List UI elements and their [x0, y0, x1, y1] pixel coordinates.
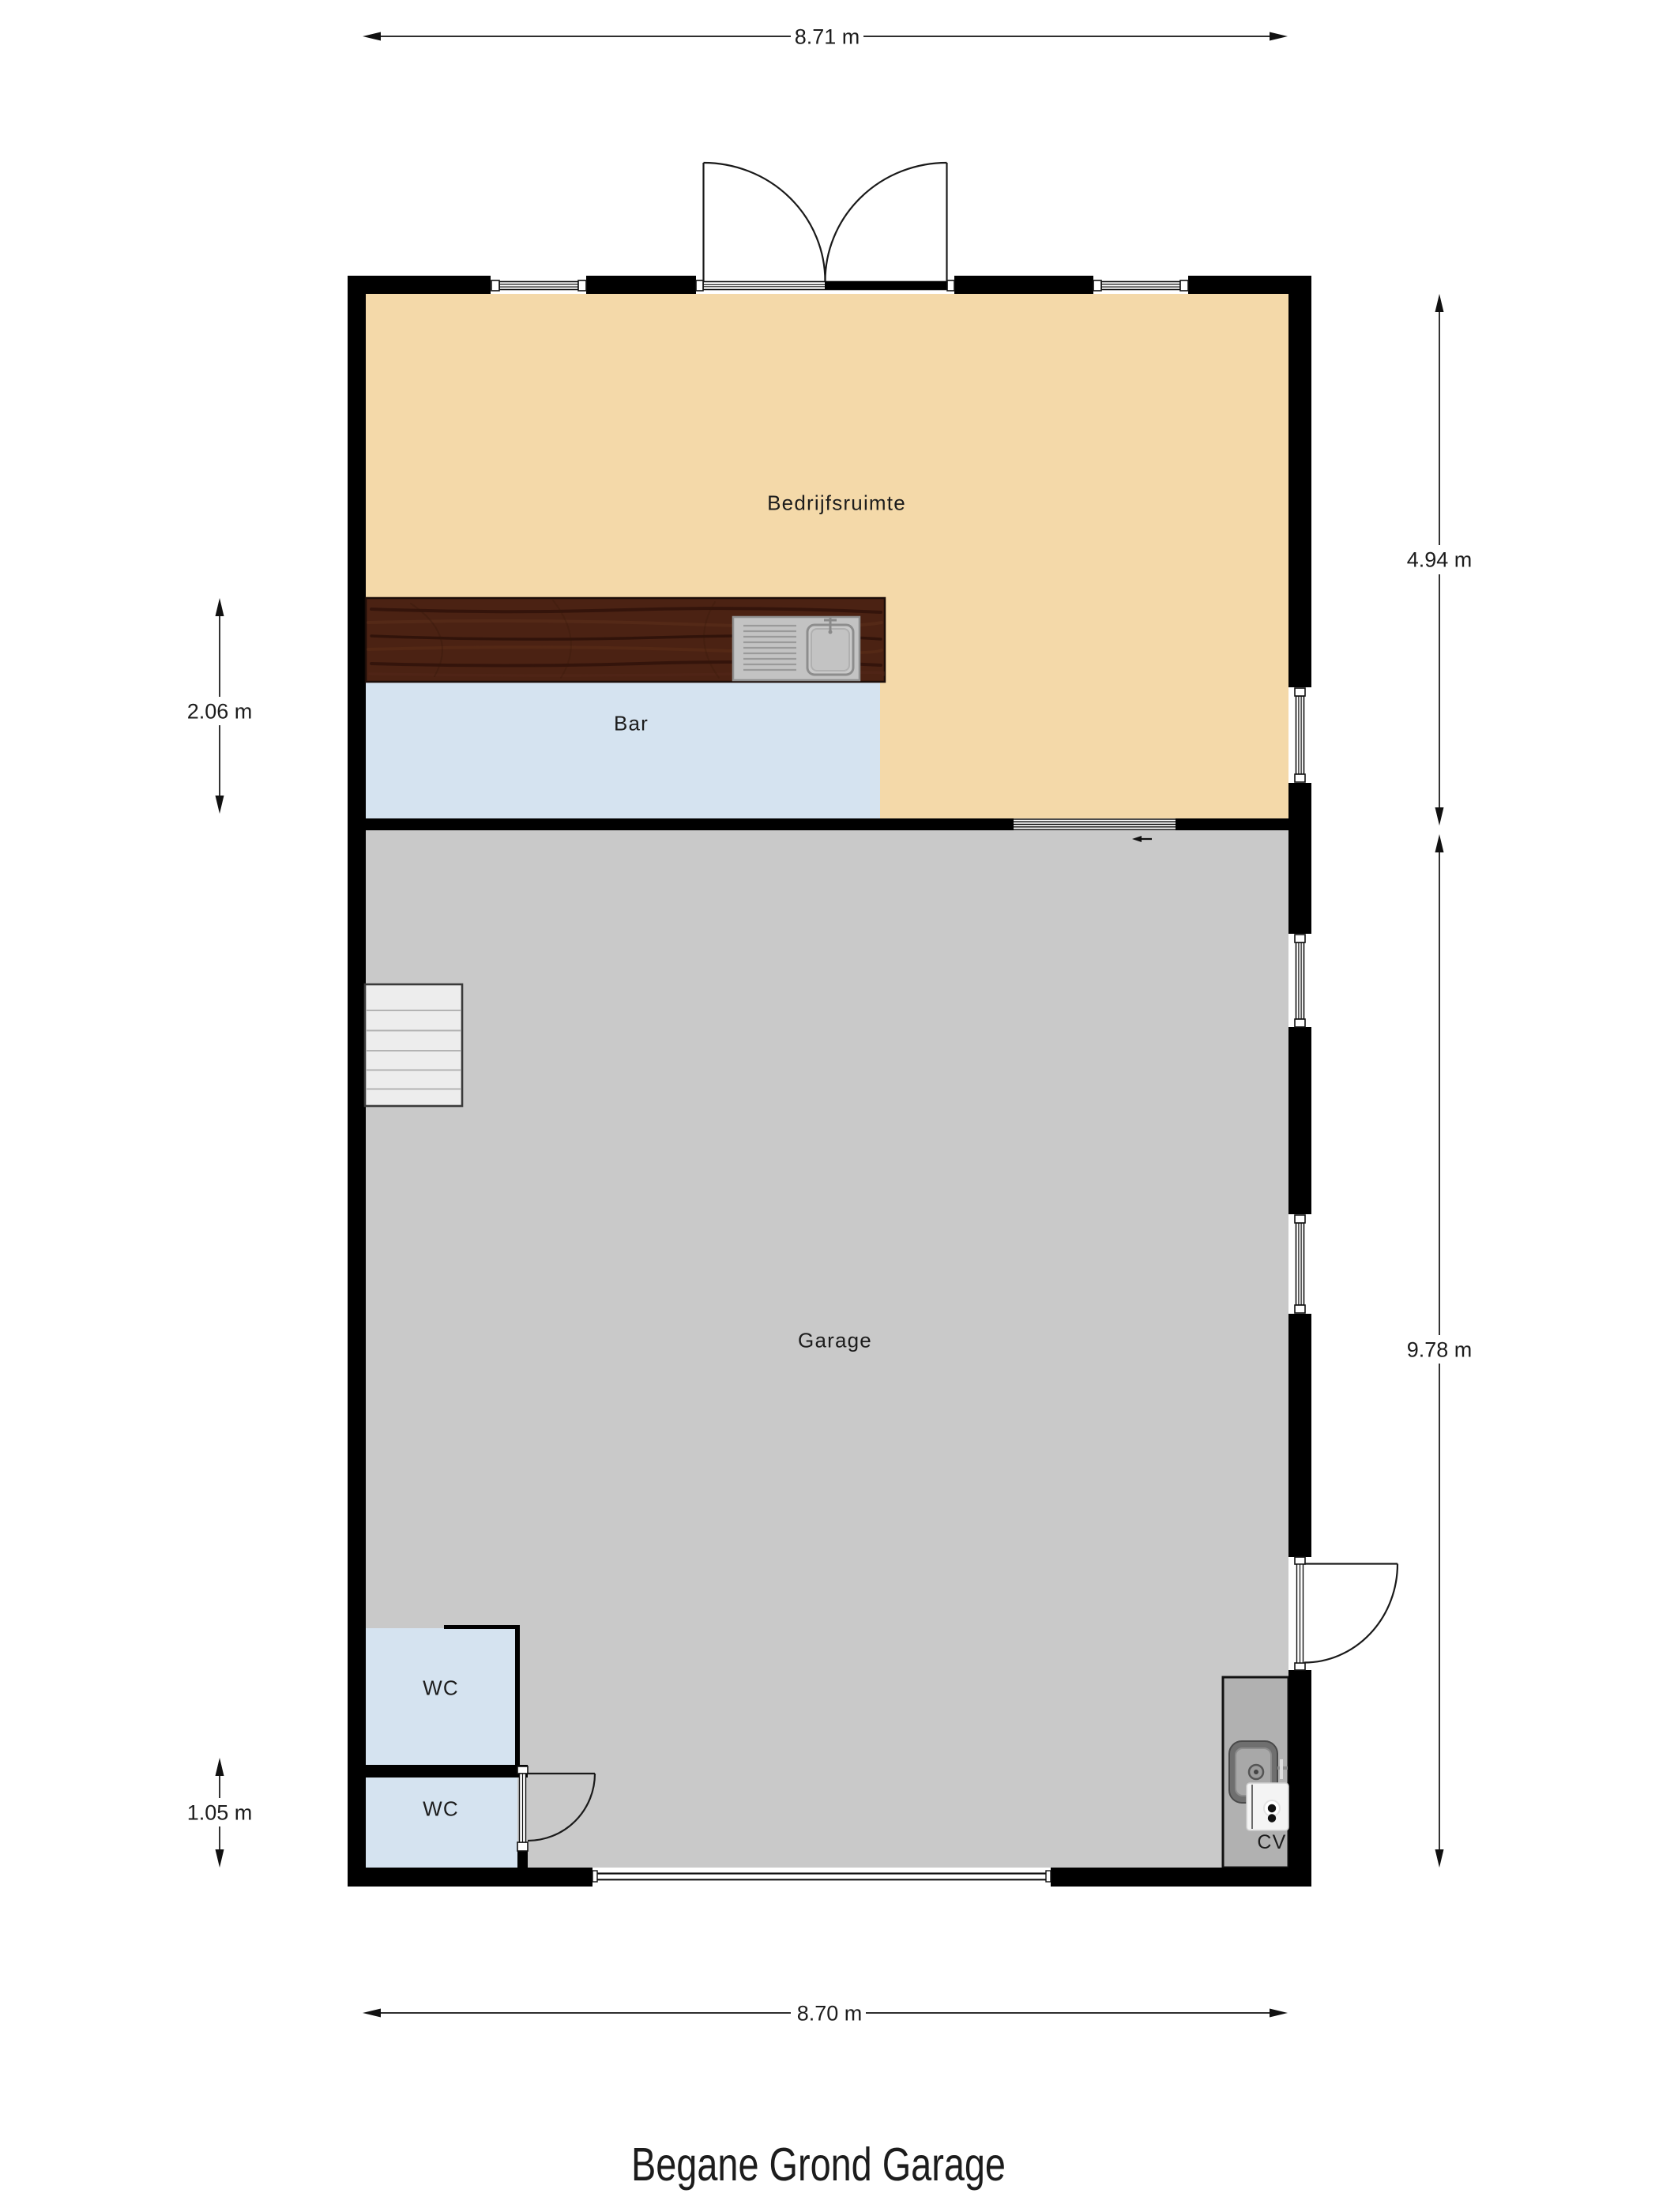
- svg-text:Bedrijfsruimte: Bedrijfsruimte: [767, 491, 906, 515]
- svg-text:Begane Grond Garage: Begane Grond Garage: [631, 2139, 1006, 2191]
- svg-text:WC: WC: [423, 1797, 459, 1821]
- svg-text:2.06 m: 2.06 m: [187, 700, 253, 724]
- svg-text:Bar: Bar: [614, 712, 649, 735]
- svg-text:4.94 m: 4.94 m: [1407, 548, 1473, 572]
- svg-text:Garage: Garage: [798, 1329, 872, 1352]
- svg-text:1.05 m: 1.05 m: [187, 1801, 253, 1825]
- svg-text:8.71 m: 8.71 m: [795, 25, 860, 49]
- svg-text:CV: CV: [1257, 1831, 1286, 1853]
- svg-text:8.70 m: 8.70 m: [797, 2002, 863, 2026]
- svg-text:9.78 m: 9.78 m: [1407, 1338, 1473, 1362]
- svg-text:WC: WC: [423, 1676, 459, 1700]
